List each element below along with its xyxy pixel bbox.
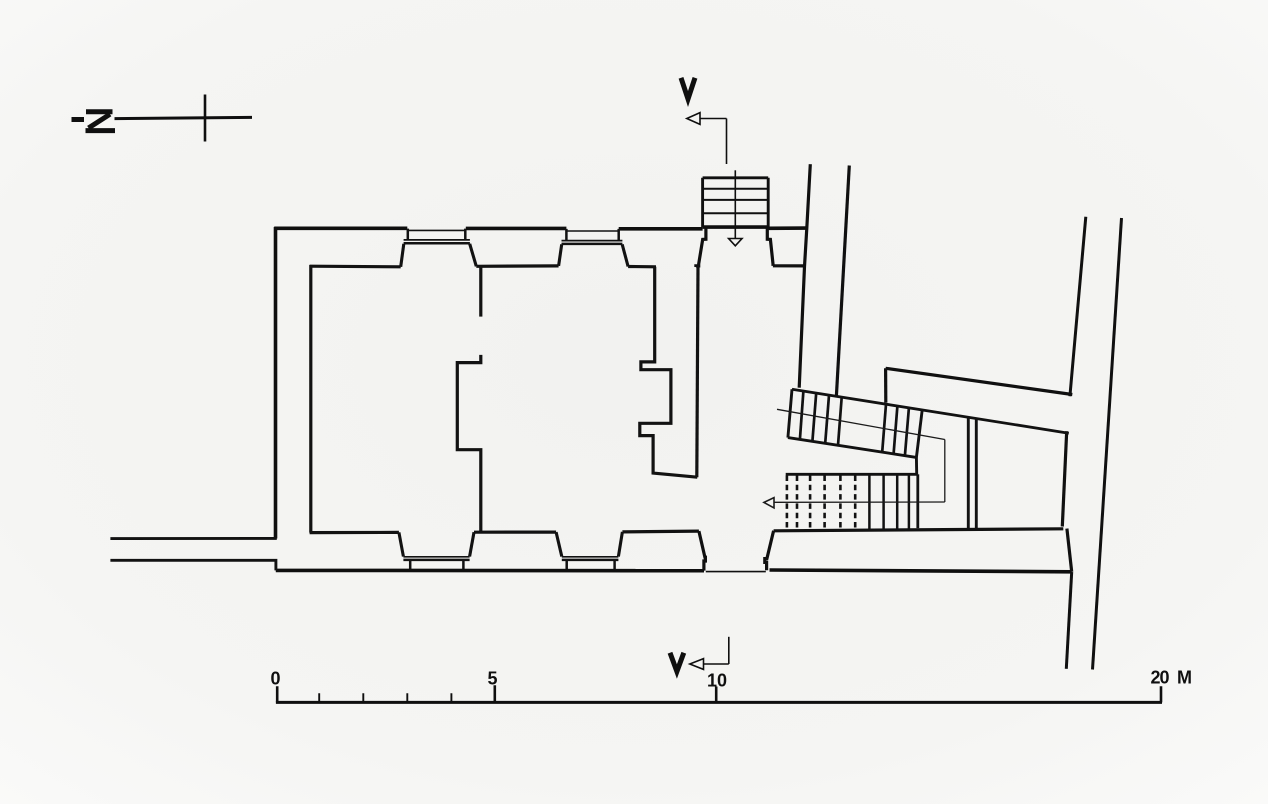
svg-text:0: 0 xyxy=(1160,668,1170,688)
svg-text:10: 10 xyxy=(707,671,727,691)
svg-text:0: 0 xyxy=(271,669,281,689)
svg-text:M: M xyxy=(1177,668,1192,688)
svg-text:5: 5 xyxy=(488,669,498,689)
